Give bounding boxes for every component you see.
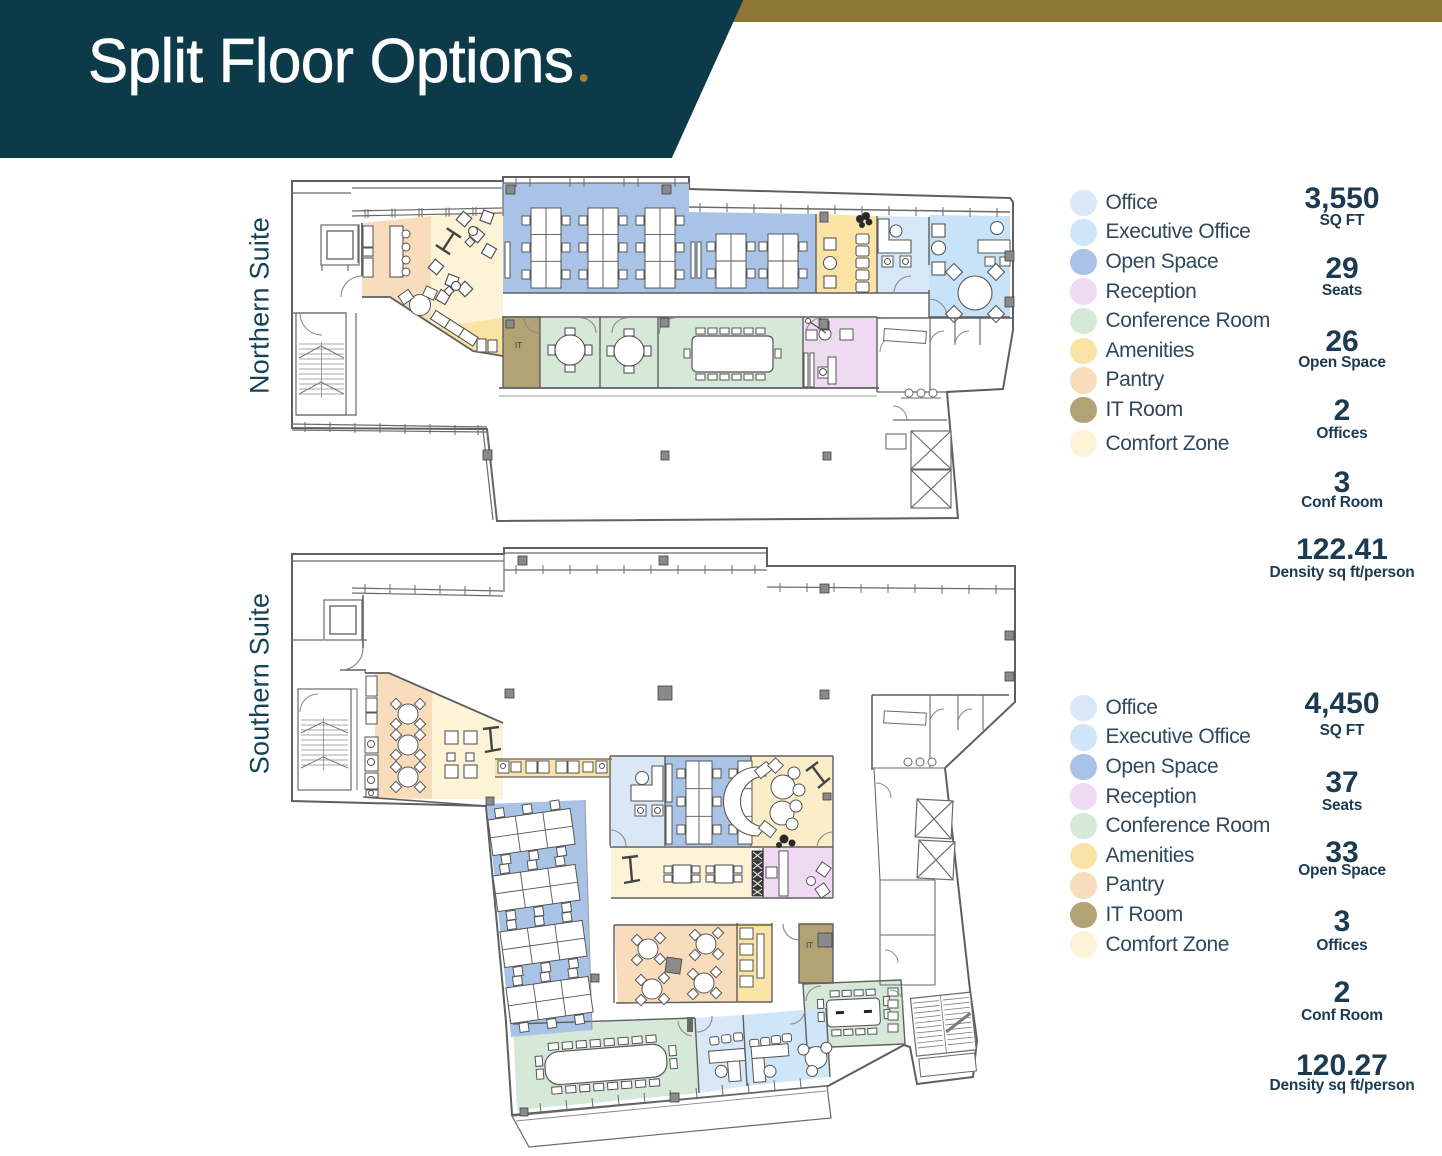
svg-text:IT: IT — [515, 341, 522, 350]
svg-text:IT: IT — [806, 941, 813, 950]
